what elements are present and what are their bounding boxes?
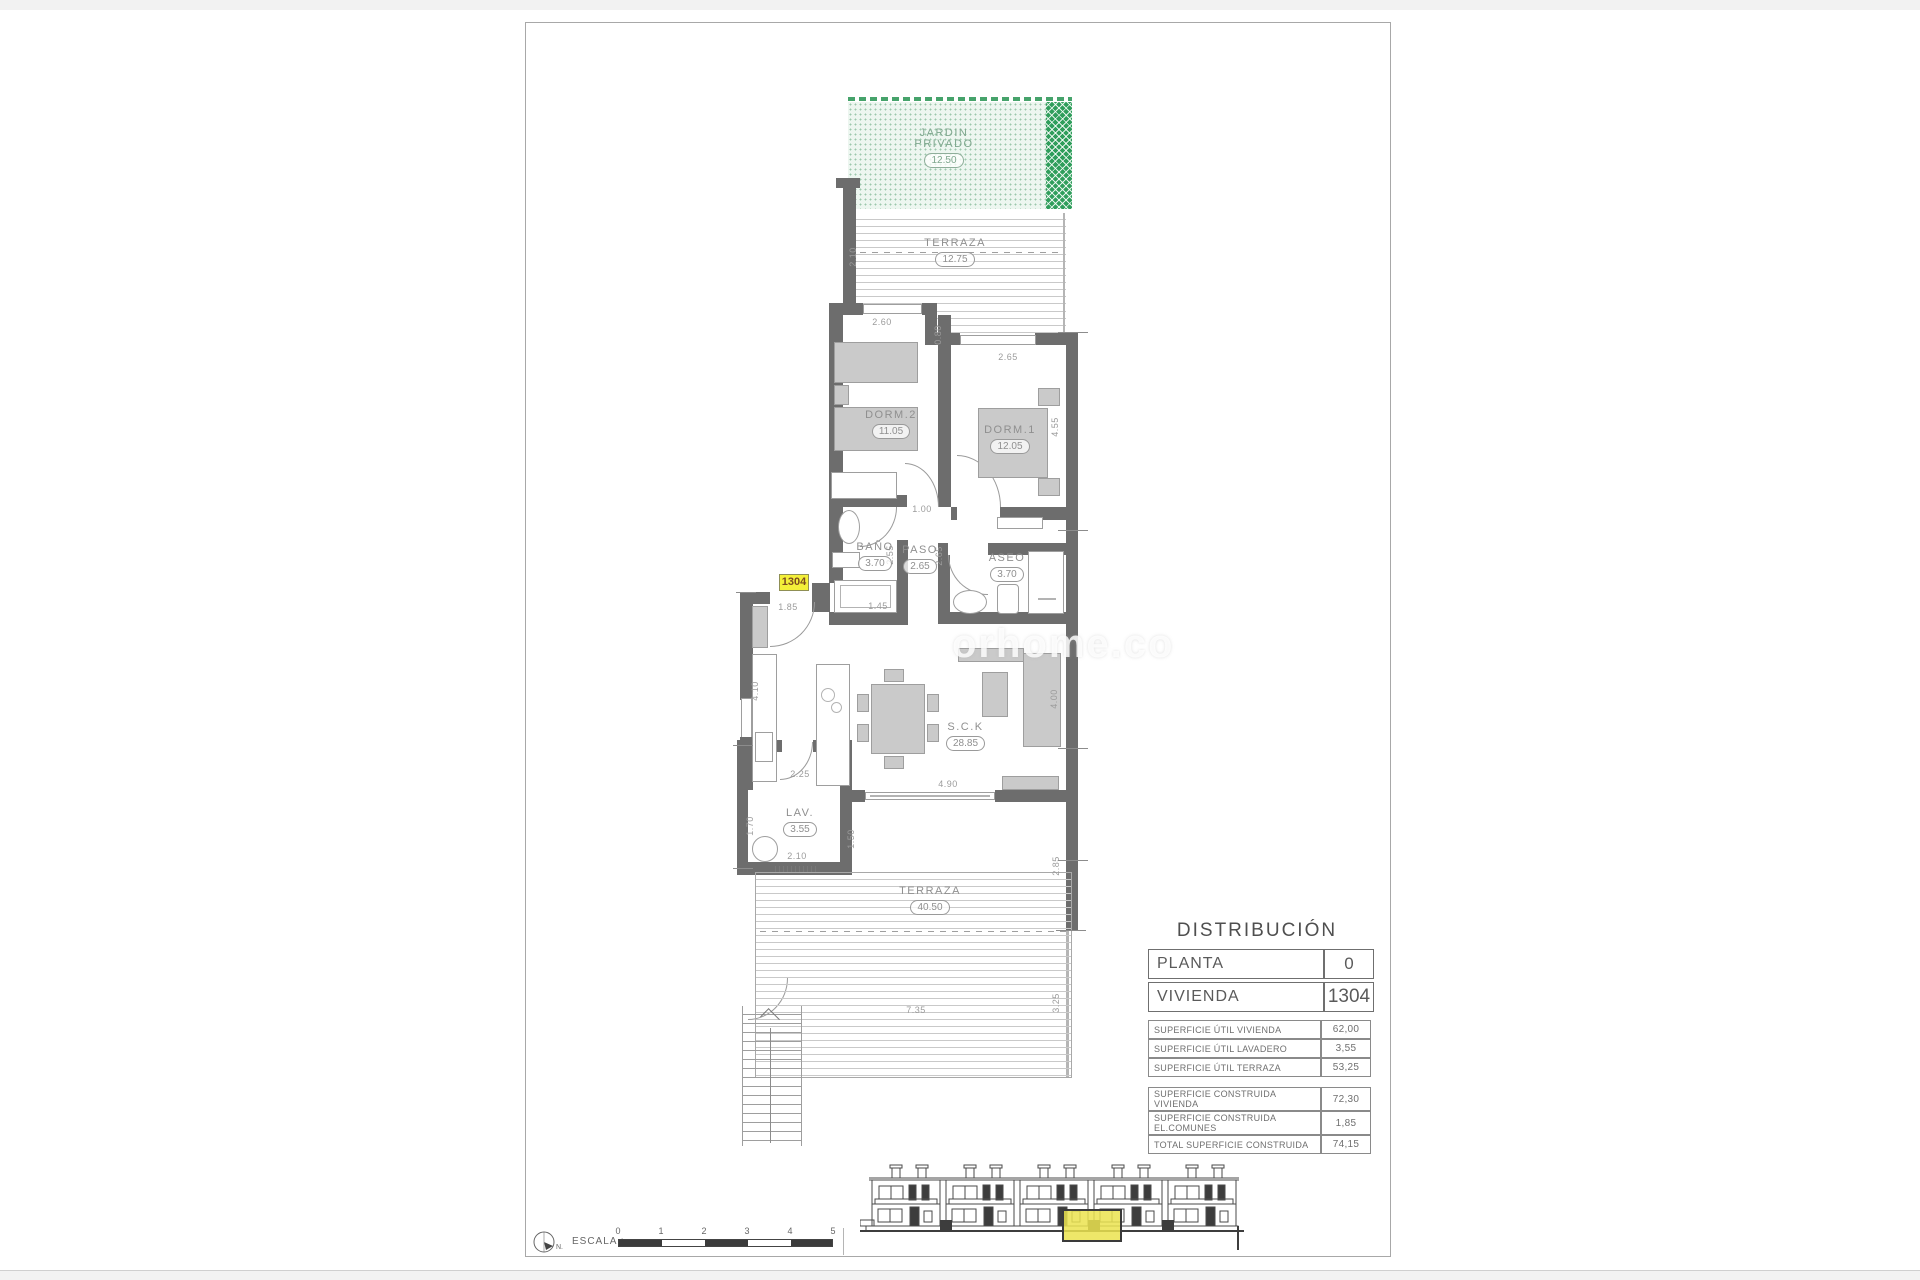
room-name: LAV.: [775, 808, 825, 819]
dimension: 2.85: [1051, 846, 1061, 886]
shower-drain: [1038, 598, 1056, 600]
fixture-toilet: [997, 584, 1019, 614]
furniture-chair: [884, 669, 904, 682]
distribution-util-table: SUPERFICIE ÚTIL VIVIENDA 62,00 SUPERFICI…: [1148, 1020, 1371, 1077]
row-label: TOTAL SUPERFICIE CONSTRUIDA: [1148, 1135, 1321, 1154]
watermark: orhome.co: [952, 622, 1174, 667]
room-label-sck: S.C.K 28.85: [928, 722, 1003, 751]
wall: [829, 612, 908, 625]
table-row: SUPERFICIE ÚTIL TERRAZA 53,25: [1148, 1058, 1371, 1077]
furniture-chair: [927, 694, 939, 712]
dimension: 2.60: [862, 317, 902, 327]
scale-segment: [619, 1240, 662, 1246]
window-sill: [960, 335, 1036, 345]
room-name: DORM.2: [848, 410, 934, 421]
row-value: 62,00: [1321, 1020, 1371, 1039]
unit-number-tag: 1304: [779, 574, 809, 591]
highlighted-unit: [1063, 1210, 1121, 1241]
dimension: 1.70: [745, 806, 755, 846]
furniture-nightstand: [1038, 478, 1060, 496]
dim-tick: [1056, 930, 1086, 931]
room-label-paso: PASO 2.65: [895, 545, 945, 574]
furniture-chair: [884, 756, 904, 769]
room-label-aseo: ASEO 3.70: [977, 553, 1037, 582]
scale-label: ESCALA :: [572, 1236, 624, 1247]
scale-segment: [791, 1240, 832, 1246]
table-row: SUPERFICIE CONSTRUIDA VIVIENDA 72,30: [1148, 1087, 1371, 1111]
building-elevation: [860, 1158, 1254, 1254]
hob-burner: [821, 688, 835, 702]
distribution-main-table: PLANTA 0 VIVIENDA 1304: [1148, 946, 1374, 1015]
sliding-door-line: [870, 795, 990, 797]
furniture-cabinet: [752, 606, 768, 648]
room-area: 2.65: [903, 559, 936, 574]
table-row: VIVIENDA 1304: [1148, 982, 1374, 1012]
dimension: 0.80: [933, 315, 943, 355]
hob-burner: [831, 702, 842, 713]
fixture-washbasin: [953, 590, 987, 614]
room-area: 3.70: [858, 556, 891, 571]
row-label: SUPERFICIE CONSTRUIDA EL.COMUNES: [1148, 1111, 1321, 1135]
terrace-drain-line: [760, 931, 1066, 932]
titleblock-divider: [843, 1228, 844, 1255]
row-label: SUPERFICIE ÚTIL VIVIENDA: [1148, 1020, 1321, 1039]
row-label: SUPERFICIE CONSTRUIDA VIVIENDA: [1148, 1087, 1321, 1111]
dim-tick: [1058, 332, 1088, 333]
distribution-built-table: SUPERFICIE CONSTRUIDA VIVIENDA 72,30 SUP…: [1148, 1087, 1371, 1154]
scale-segment: [705, 1240, 748, 1246]
row-value: 72,30: [1321, 1087, 1371, 1111]
row-value: 74,15: [1321, 1135, 1371, 1154]
washing-machine: [752, 836, 778, 862]
row-label: SUPERFICIE ÚTIL LAVADERO: [1148, 1039, 1321, 1058]
dim-tick: [736, 592, 756, 593]
room-area: 11.05: [872, 424, 910, 439]
row-label: SUPERFICIE ÚTIL TERRAZA: [1148, 1058, 1321, 1077]
furniture-dining-table: [871, 684, 925, 754]
furniture-wardrobe: [831, 472, 897, 499]
floorplan-sheet: JARDIN PRIVADO 12.50 TERRAZA 12.75: [0, 0, 1920, 1280]
dimension: 1.45: [858, 601, 898, 611]
furniture-tv-unit: [1002, 776, 1059, 790]
scale-tick: 0: [613, 1226, 623, 1236]
wall: [1035, 333, 1078, 345]
row-value: 3,55: [1321, 1039, 1371, 1058]
room-label-dorm2: DORM.2 11.05: [848, 410, 934, 439]
dimension: 3.25: [1051, 983, 1061, 1023]
wall: [850, 790, 865, 802]
kitchen-island: [816, 664, 850, 786]
room-area: 12.50: [924, 153, 963, 168]
room-label-lav: LAV. 3.55: [775, 808, 825, 837]
garden-border-dashes: [848, 97, 1072, 101]
bottom-letterbox: [0, 1270, 1920, 1280]
wall: [740, 592, 770, 604]
scale-tick: 4: [785, 1226, 795, 1236]
room-area: 12.05: [990, 439, 1029, 454]
furniture-nightstand: [834, 385, 849, 405]
room-name: ASEO: [977, 553, 1037, 564]
wall: [995, 790, 1066, 802]
dim-tick: [1058, 748, 1088, 749]
table-row: TOTAL SUPERFICIE CONSTRUIDA 74,15: [1148, 1135, 1371, 1154]
row-label: PLANTA: [1148, 949, 1324, 979]
room-area: 40.50: [910, 900, 949, 915]
furniture-wardrobe: [997, 517, 1043, 529]
table-row: SUPERFICIE CONSTRUIDA EL.COMUNES 1,85: [1148, 1111, 1371, 1135]
row-value: 0: [1324, 949, 1374, 979]
scale-tick: 5: [828, 1226, 838, 1236]
table-row: PLANTA 0: [1148, 949, 1374, 979]
room-area: 3.70: [990, 567, 1023, 582]
wall: [951, 507, 957, 520]
room-name: TERRAZA: [895, 886, 965, 897]
furniture-bed: [834, 342, 918, 383]
dimension: 2.10: [777, 851, 817, 861]
dim-tick: [1058, 860, 1088, 861]
dimension: 1.85: [768, 602, 808, 612]
room-name: TERRAZA: [920, 238, 990, 249]
row-value: 53,25: [1321, 1058, 1371, 1077]
furniture-coffee-table: [982, 672, 1008, 717]
room-area: 28.85: [946, 736, 985, 751]
row-label: VIVIENDA: [1148, 982, 1324, 1012]
north-arrow-icon: [532, 1229, 558, 1255]
room-name: DORM.1: [968, 425, 1052, 436]
dim-tick: [1058, 530, 1088, 531]
room-area: 3.55: [783, 822, 816, 837]
room-name: S.C.K: [928, 722, 1003, 733]
row-value: 1,85: [1321, 1111, 1371, 1135]
dimension: 7.35: [896, 1005, 936, 1015]
dimension: 1.50: [846, 819, 856, 859]
dimension: 4.10: [750, 671, 760, 711]
room-label-dorm1: DORM.1 12.05: [968, 425, 1052, 454]
north-label: N.: [556, 1244, 563, 1251]
dimension: 4.90: [928, 779, 968, 789]
dim-tick: [733, 745, 753, 746]
furniture-chair: [857, 694, 869, 712]
row-value: 1304: [1324, 982, 1374, 1012]
dimension: 1.00: [902, 504, 942, 514]
kitchen-sink: [755, 732, 773, 762]
scale-tick: 1: [656, 1226, 666, 1236]
room-label-terraza-top: TERRAZA 12.75: [920, 238, 990, 267]
dim-tick: [733, 868, 753, 869]
room-label-terraza-bottom: TERRAZA 40.50: [895, 886, 965, 915]
dimension: 4.00: [1049, 679, 1059, 719]
scale-tick: 3: [742, 1226, 752, 1236]
top-letterbox: [0, 0, 1920, 10]
distribution-title: DISTRIBUCIÓN: [1148, 920, 1366, 942]
room-area: 12.75: [935, 252, 974, 267]
table-row: SUPERFICIE ÚTIL LAVADERO 3,55: [1148, 1039, 1371, 1058]
hedge-strip: [1046, 102, 1072, 209]
dimension: 2.65: [988, 352, 1028, 362]
window-sill: [863, 304, 922, 314]
furniture-nightstand: [1038, 388, 1060, 406]
dimension: 2.10: [848, 237, 858, 277]
furniture-chair: [857, 724, 869, 742]
dimension: 2.25: [780, 769, 820, 779]
scale-bar: [618, 1239, 833, 1247]
wall: [829, 303, 863, 315]
terrace-railing: [1063, 213, 1065, 335]
fixture-washbasin: [838, 510, 860, 544]
scale-tick: 2: [699, 1226, 709, 1236]
room-label-jardin: JARDIN PRIVADO 12.50: [906, 128, 982, 168]
room-name: PASO: [895, 545, 945, 556]
stairs-rail: [770, 1028, 771, 1143]
room-name: JARDIN PRIVADO: [906, 128, 982, 150]
table-row: SUPERFICIE ÚTIL VIVIENDA 62,00: [1148, 1020, 1371, 1039]
upper-terrace-deck-step: [937, 305, 1066, 335]
wall: [812, 583, 830, 612]
